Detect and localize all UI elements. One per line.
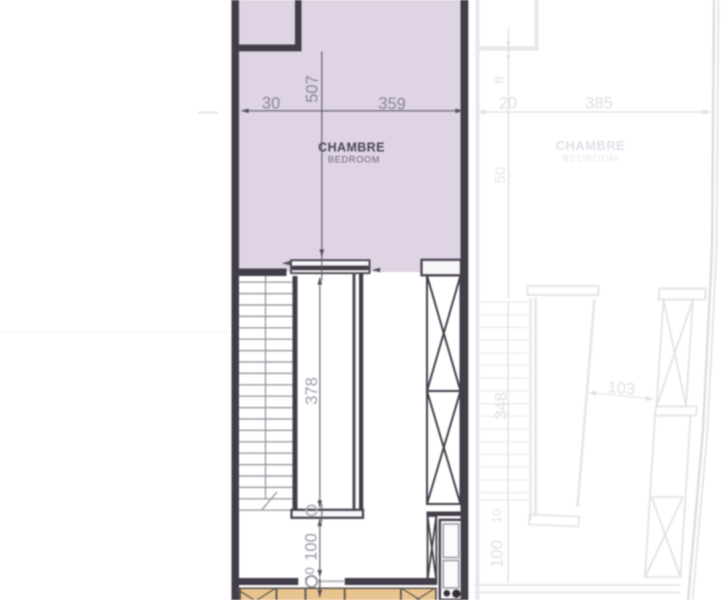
- svg-text:CHAMBRE: CHAMBRE: [556, 138, 626, 153]
- svg-text:100: 100: [489, 540, 507, 568]
- svg-text:378: 378: [303, 377, 321, 405]
- svg-text:359: 359: [378, 95, 406, 114]
- svg-text:10: 10: [489, 509, 504, 523]
- svg-text:507: 507: [304, 75, 322, 103]
- svg-text:20: 20: [499, 95, 517, 113]
- svg-text:348: 348: [493, 392, 511, 420]
- svg-text:103: 103: [607, 378, 636, 398]
- svg-text:385: 385: [585, 95, 613, 113]
- svg-text:100: 100: [303, 533, 321, 561]
- svg-text:30: 30: [262, 94, 281, 113]
- svg-text:CHAMBRE: CHAMBRE: [318, 141, 385, 155]
- svg-text:BEDROOM: BEDROOM: [562, 154, 619, 165]
- svg-text:BEDROOM: BEDROOM: [328, 155, 380, 165]
- svg-text:50: 50: [492, 167, 509, 184]
- svg-text:8: 8: [490, 76, 506, 84]
